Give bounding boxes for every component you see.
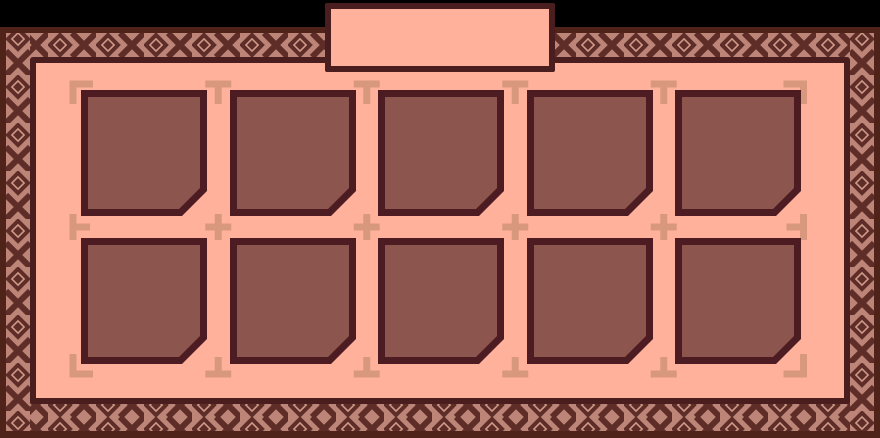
border-pattern-right [850, 33, 874, 431]
inventory-slot-1[interactable] [81, 90, 207, 216]
slot-shape [230, 238, 356, 364]
border-pattern-left [6, 33, 30, 431]
slot-shape [81, 90, 207, 216]
slot-shape [378, 90, 504, 216]
inventory-slot-3[interactable] [378, 90, 504, 216]
slot-shape [81, 238, 207, 364]
inventory-grid [81, 90, 801, 364]
inventory-slot-8[interactable] [378, 238, 504, 364]
slot-shape [527, 238, 653, 364]
game-screen [0, 0, 880, 438]
inventory-slot-5[interactable] [675, 90, 801, 216]
slot-shape [527, 90, 653, 216]
inventory-slot-6[interactable] [81, 238, 207, 364]
inventory-slot-9[interactable] [527, 238, 653, 364]
slot-shape [230, 90, 356, 216]
slot-shape [675, 238, 801, 364]
inventory-slot-4[interactable] [527, 90, 653, 216]
slot-shape [378, 238, 504, 364]
panel-tab[interactable] [325, 3, 555, 72]
inventory-slot-2[interactable] [230, 90, 356, 216]
inventory-slot-7[interactable] [230, 238, 356, 364]
slot-shape [675, 90, 801, 216]
inventory-slot-10[interactable] [675, 238, 801, 364]
